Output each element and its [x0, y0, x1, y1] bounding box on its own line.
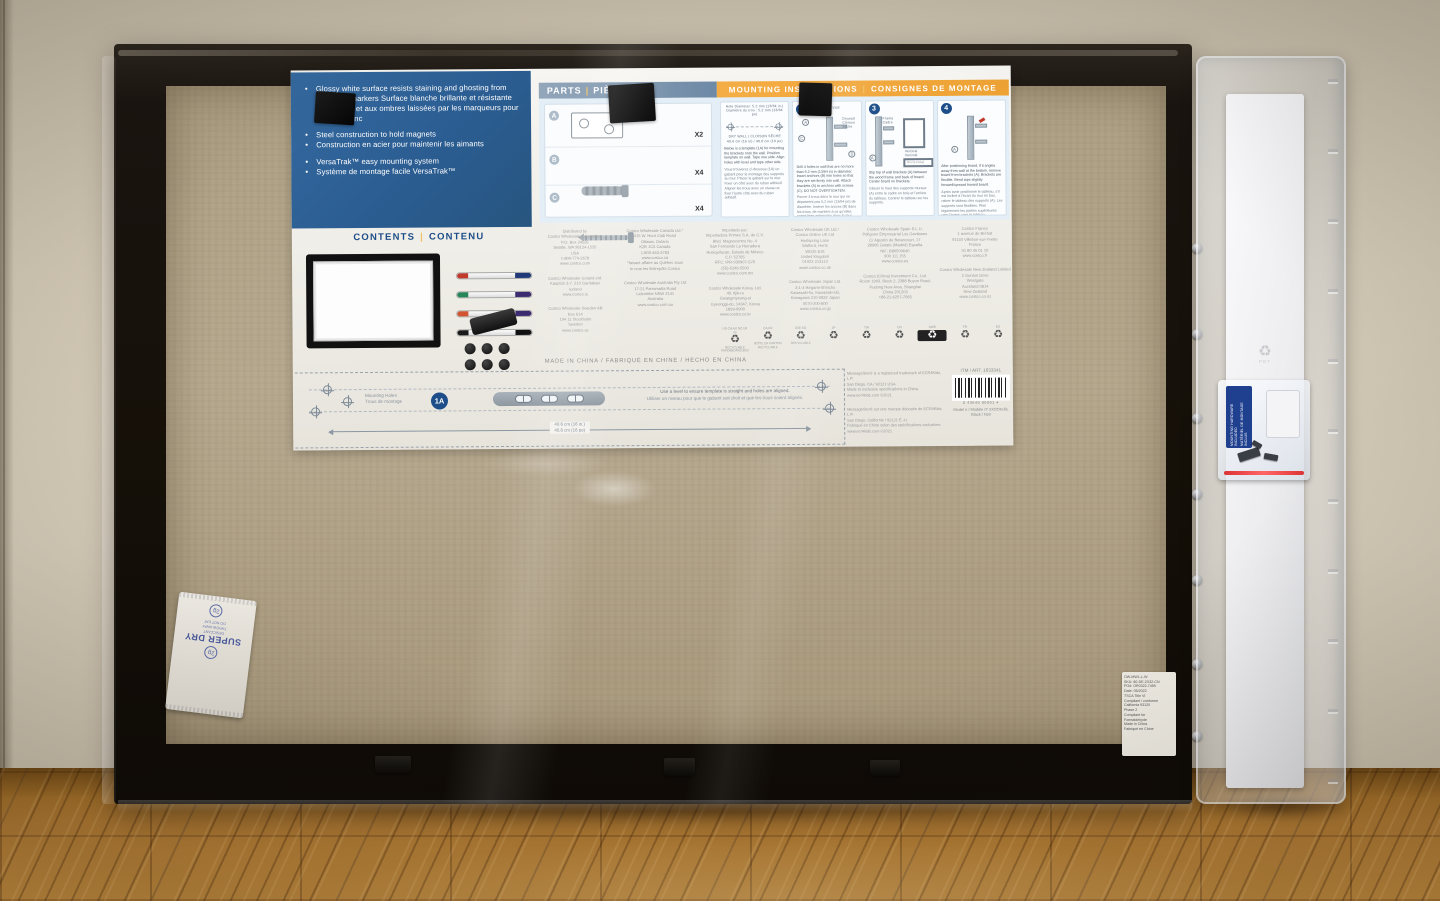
distributor-block: Costco Wholesale New Zealand Limited 2 G… [938, 267, 1012, 300]
recycle-triangle-icon: ♻ [1258, 344, 1271, 359]
contents-panel: CONTENTS | CONTENU [300, 231, 539, 379]
mounting-title-fr: CONSIGNES DE MONTAGE [871, 83, 997, 93]
item-number: ITM / ART. 1633341 [951, 367, 1011, 372]
barcode-digits: 0 43640 06001 4 [951, 400, 1011, 404]
distributor-block: Costco Wholesale Australia Pty Ltd 17-21… [618, 280, 692, 307]
step4-text-fr: Après avoir positionné le tableau, s'il … [941, 189, 1002, 216]
made-in-line: MADE IN CHINA / FABRIQUÉ EN CHINE / HECH… [545, 357, 747, 364]
level-note: Use a level to ensure template is straig… [625, 388, 825, 403]
vertical-label: Vertical Vertical [905, 149, 918, 157]
bracket-side [883, 126, 894, 130]
crosshair-hole [323, 385, 332, 394]
bracket-side [883, 140, 894, 144]
dashed-line [309, 408, 830, 413]
bracket-side [975, 140, 987, 144]
step2-diagram: A C B Drywall Cloison sèche [796, 117, 858, 163]
frame-sticker-text: OW-MWL-L-W SKU: 80-DE-2X32-CN PO#: OR032… [1124, 675, 1174, 732]
dimension-fr: 40,6 cm (16 po) [554, 428, 585, 433]
crosshair-hole [776, 123, 782, 129]
template-badge-1a: 1A [431, 392, 448, 409]
part-letter-badge: A [549, 111, 559, 121]
mounting-panel: MOUNTING INSTRUCTIONS | CONSIGNES DE MON… [717, 80, 1010, 222]
distributor-block: Costco Wholesale Japan Ltd. 3-1-4 Ikegam… [778, 279, 852, 312]
trademark-fr: MessageStor® est une marque déposée de E… [847, 406, 947, 434]
step1-text-fr: Vous trouverez ci-dessous (1A) un gabari… [724, 167, 785, 201]
distributor-block: Costco France 1 avenue de Bréhat 91140 V… [938, 225, 1012, 258]
part-letter-badge: B [549, 155, 559, 165]
level-note-fr: Utiliser un niveau pour que le gabarit s… [647, 395, 804, 401]
trademark-en: MessageStor® is a registered trademark o… [847, 370, 947, 398]
crosshair-hole [343, 397, 352, 406]
shrinkwrap-left-edge [102, 56, 116, 804]
hardware-bag: MOUNTING HARDWARE INCLUDED MATÉRIEL DE M… [1218, 380, 1310, 480]
mounting-title-en: MOUNTING INSTRUCTIONS [729, 84, 858, 94]
distributor-block: Costco Wholesale Korea, Ltd. 40, Iljik-r… [698, 285, 772, 318]
tape-piece [798, 82, 832, 116]
step2-text-en: Drill 4 holes in wall that are no more t… [797, 165, 858, 194]
contents-title-en: CONTENTS [353, 232, 415, 243]
horizontal-label: Horizontal Horizontal [907, 160, 924, 168]
desiccant-print: 2g SUPER DRY DESICCANT THROW AWAY DO NOT… [177, 600, 251, 663]
drywall-callout: Drywall Cloison sèche [842, 117, 857, 129]
recycle-icon: ♻ [885, 330, 914, 342]
bend-arrow [978, 117, 985, 123]
versatrak-clip [375, 756, 411, 773]
bracket-side [975, 124, 987, 128]
dim-label: 40.6 cm (16 in) / 40,6 cm (16 po) [724, 139, 785, 143]
step2-text-fr: Percer 4 trous dans le mur qui ne dépass… [797, 195, 859, 217]
shrinkwrap-bottom-edge [118, 800, 1192, 812]
model-number: Model # / Modèle nº 2XOON-BL Black / Noi… [951, 406, 1011, 417]
distributor-block: Distributed by Costco Wholesale Corporat… [538, 228, 612, 266]
feature-bullet: Construction en acier pour maintenir les… [305, 139, 519, 150]
part-letter-badge: C [550, 193, 560, 203]
step4-diagram: A [941, 116, 1003, 162]
dimension-en: 40.6 cm (16 in.) [554, 421, 585, 426]
hole-diameter-fr: Diamètre du trou : 5,2 mm (13/64 po) [724, 108, 785, 116]
distributor-block: Importado por: Importadora Primex S.A. d… [698, 227, 772, 276]
step4-text-en: After positioning board, if it angles aw… [941, 164, 1002, 188]
level-note-en: Use a level to ensure template is straig… [660, 388, 790, 394]
recycle-icon: ♻ [721, 334, 750, 346]
recycle-caption: RECYCLABLE [786, 342, 815, 346]
crosshair-hole [311, 407, 320, 416]
crosshair-hole [727, 124, 733, 130]
blister-pack: ♻ PET MOUNTING HARDWARE INCLUDED MATÉRIE… [1196, 56, 1346, 804]
magnet [499, 359, 510, 370]
magnet [482, 359, 493, 370]
recycle-icon: ♻ [918, 329, 947, 341]
dimension-label: 40.6 cm (16 in.) 40,6 cm (16 po) [549, 421, 590, 434]
wall-cross-section [826, 117, 833, 161]
hardware-label-fr: MATÉRIEL DE MONTAGE INCLUS [1240, 388, 1248, 446]
template-mini-diagram: DRY WALL | CLOISON SÈCHE 40.6 cm (16 in)… [724, 118, 785, 144]
step3-text-en: Slip top of wall brackets (A) between th… [869, 170, 930, 185]
distributor-block: Costco Wholesale Spain S.L.U. Polígono E… [858, 226, 932, 264]
pet-emboss: ♻ PET [1258, 344, 1271, 364]
step3-text-fr: Glisser le haut des supports muraux (A) … [869, 186, 930, 205]
label-b: B [849, 151, 856, 158]
mounting-holes-label: Mounting Holes Trous de montage [365, 393, 402, 405]
tape-piece [314, 91, 356, 125]
anchor-diagram [581, 186, 623, 195]
magnet [482, 343, 493, 354]
label-a: A [951, 146, 958, 153]
contents-title: CONTENTS | CONTENU [300, 231, 538, 244]
distributor-block: Costco Wholesale UK Ltd / Costco Online … [778, 227, 852, 271]
recycle-item: FR ♻ [951, 326, 980, 362]
part-qty: X4 [695, 170, 704, 177]
distributor-block: Costco Wholesale Canada Ltd.* 415 W. Hun… [618, 228, 692, 272]
barcode [952, 375, 1010, 401]
screws [1264, 453, 1279, 461]
level-vial [514, 395, 531, 403]
contents-title-fr: CONTENU [429, 231, 484, 242]
blister-ridges [1328, 76, 1338, 784]
feature-bullet: Système de montage facile VersaTrak™ [305, 166, 519, 177]
distributor-block: Costco Wholesale Iceland ehf. Kauptún 3-… [538, 275, 612, 297]
mounting-step1-card: Hole Diameter: 5.2 mm (13/64 in.) Diamèt… [720, 101, 790, 217]
part-qty: X2 [695, 132, 704, 139]
template-strip: Mounting Holes Trous de montage 1A Use a… [295, 369, 846, 449]
divider [545, 146, 711, 148]
wall-cross-section [967, 116, 974, 160]
desiccant-weight: 2g [209, 604, 223, 618]
header-separator: | [586, 85, 590, 95]
recycle-icon: ♻ [852, 330, 881, 342]
header-separator: | [863, 84, 866, 93]
mounting-body: Hole Diameter: 5.2 mm (13/64 in.) Diamèt… [717, 96, 1010, 222]
level-icon [493, 391, 605, 406]
label-a: A [869, 154, 876, 161]
magnet [465, 359, 476, 370]
distributor-column: Costco Wholesale Canada Ltd.* 415 W. Hun… [618, 228, 693, 357]
bag-seal [1224, 471, 1304, 475]
label-a: A [802, 119, 809, 126]
green-dot-icon: ♻ [984, 329, 1013, 341]
parts-title-en: PARTS [547, 85, 582, 95]
recycle-item: TW ♻ [852, 326, 881, 362]
whiteboard-illustration [306, 253, 441, 348]
label-c: C [798, 135, 805, 142]
level-vial [540, 395, 557, 403]
versatrak-clip [870, 760, 900, 776]
step-number: 4 [941, 103, 952, 114]
wall-corner-line [3, 0, 5, 775]
mounting-step3-card: 3 A Frame Cadre Vertical Vertical Horizo… [864, 100, 934, 216]
legal-block: MessageStor® is a registered trademark o… [847, 365, 1012, 442]
frame-callout: Frame Cadre [883, 116, 894, 124]
desiccant-weight: 2g [204, 645, 218, 659]
bracket-side [834, 143, 847, 147]
screws [1237, 447, 1261, 462]
mounting-step4-card: 4 A After positioning board, if it angle… [937, 100, 1007, 216]
distributor-block: Costco Wholesale Sweden AB Box 614 194 1… [538, 306, 612, 333]
recycle-caption: BOÎTE EN CARTON RECYCLABLE [753, 342, 782, 349]
distributor-column: Distributed by Costco Wholesale Corporat… [538, 228, 613, 357]
recycle-icon: ♻ [819, 330, 848, 342]
recycle-item: ES ♻ [984, 325, 1013, 361]
hardware-bag-label: MOUNTING HARDWARE INCLUDED MATÉRIEL DE M… [1226, 386, 1252, 448]
recycle-caption: RECYCLABLE PAPERBOARD BOX [721, 346, 750, 353]
tape-piece [608, 83, 656, 124]
recycle-item: CA FR ♻ BOÎTE EN CARTON RECYCLABLE [753, 327, 782, 363]
dry-erase-marker [456, 272, 532, 280]
instruction-sheet: Glossy white surface resists staining an… [291, 65, 1014, 450]
tidyman-icon: ♻ [951, 329, 980, 341]
versatrak-clip [664, 758, 695, 776]
mounting-step2-card: 2 SIDE VIEW | VUE LATÉRALE A C B Drywall… [792, 101, 862, 217]
desiccant-packet: 2g SUPER DRY DESICCANT THROW AWAY DO NOT… [165, 592, 257, 719]
frame-top-glint [118, 50, 1178, 56]
magnet [465, 343, 476, 354]
step1-text-en: Below is a template (1A) for mounting th… [724, 146, 785, 165]
part-qty: X4 [695, 206, 704, 213]
crosshair-hole [825, 404, 834, 413]
magnet [499, 343, 510, 354]
hardware-label-en: MOUNTING HARDWARE INCLUDED [1230, 388, 1238, 446]
board-vertical-outline [903, 118, 925, 148]
step-number: 3 [868, 103, 879, 114]
drywall-label: DRY WALL | CLOISON SÈCHE [724, 134, 785, 138]
item-barcode-block: ITM / ART. 1633341 0 43640 06001 4 Model… [951, 367, 1011, 417]
step3-diagram: A Frame Cadre Vertical Vertical Horizont… [869, 116, 931, 168]
photo-scene: Glossy white surface resists staining an… [0, 0, 1440, 901]
whiteboard-surface [313, 261, 434, 342]
recycle-item: CN ♻ [885, 326, 914, 362]
frame-sticker: OW-MWL-L-W SKU: 80-DE-2X32-CN PO#: OR032… [1122, 672, 1176, 756]
recycle-item: SWE ♻ [918, 326, 947, 362]
recycle-item: IRE KR ♻ RECYCLABLE [786, 327, 815, 363]
dry-erase-marker [456, 291, 532, 299]
header-separator: | [420, 232, 424, 243]
hardware-tray [1266, 390, 1300, 438]
pet-code: PET [1258, 359, 1271, 364]
distributor-block: Costco (China) Investment Co., Ltd. Room… [858, 273, 932, 300]
recycle-icons-row: US CA AU NZ UK IS ♻ RECYCLABLE PAPERBOAR… [720, 325, 1012, 363]
recycle-item: JP ♻ [819, 327, 848, 363]
level-vial [566, 394, 583, 402]
